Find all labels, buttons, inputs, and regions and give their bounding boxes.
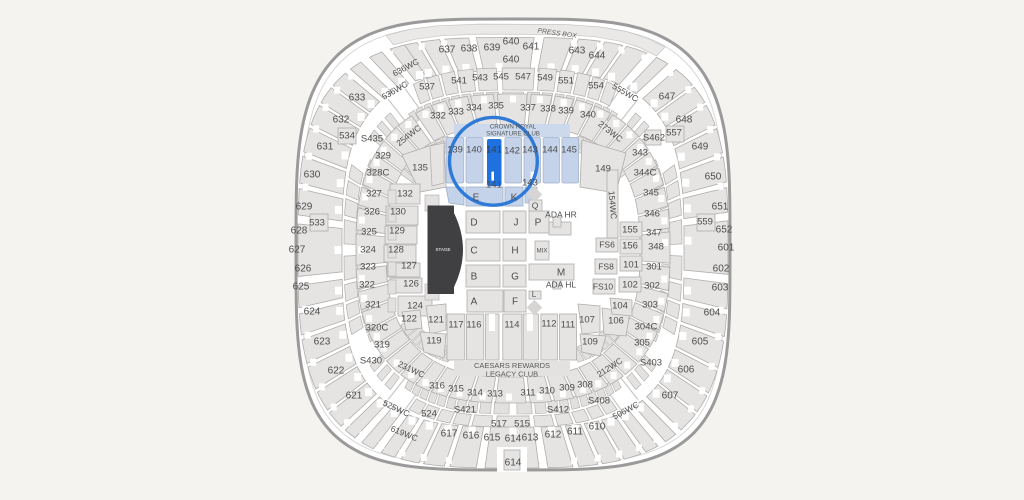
svg-text:143: 143 [522, 145, 538, 156]
svg-text:S462: S462 [643, 133, 665, 144]
svg-text:629: 629 [296, 202, 313, 213]
svg-text:610: 610 [589, 422, 606, 433]
svg-text:623: 623 [314, 337, 331, 348]
svg-text:627: 627 [289, 245, 306, 256]
svg-text:347: 347 [646, 228, 662, 239]
svg-text:S412: S412 [547, 405, 569, 416]
svg-text:S435: S435 [361, 134, 383, 145]
svg-text:327: 327 [366, 189, 382, 200]
svg-text:630: 630 [304, 170, 321, 181]
svg-text:F: F [512, 297, 518, 308]
svg-text:613: 613 [522, 433, 539, 444]
svg-text:615: 615 [484, 433, 501, 444]
svg-text:104: 104 [612, 301, 628, 312]
svg-text:119: 119 [426, 336, 441, 347]
svg-text:612: 612 [545, 430, 562, 441]
svg-text:ADA HL: ADA HL [546, 279, 577, 289]
svg-text:606: 606 [678, 365, 695, 376]
svg-text:FS6: FS6 [599, 239, 615, 249]
svg-text:139: 139 [447, 145, 463, 156]
svg-text:346: 346 [644, 209, 660, 220]
svg-text:310: 310 [539, 386, 555, 397]
svg-text:638: 638 [461, 44, 478, 55]
svg-text:313: 313 [487, 389, 503, 400]
svg-text:D: D [470, 218, 477, 229]
svg-text:149: 149 [595, 164, 611, 175]
svg-text:517: 517 [491, 419, 507, 430]
svg-text:339: 339 [558, 106, 574, 117]
svg-text:128: 128 [388, 245, 404, 256]
svg-text:551: 551 [558, 76, 574, 87]
svg-text:141: 141 [486, 180, 502, 191]
svg-text:117: 117 [448, 320, 463, 331]
svg-text:649: 649 [692, 142, 709, 153]
svg-text:643: 643 [569, 46, 586, 57]
svg-text:316: 316 [429, 381, 445, 392]
svg-text:633: 633 [349, 93, 366, 104]
svg-text:102: 102 [622, 280, 638, 291]
svg-text:651: 651 [712, 202, 729, 213]
svg-text:607: 607 [662, 391, 679, 402]
svg-text:STAGE: STAGE [436, 247, 451, 252]
svg-text:112: 112 [541, 319, 556, 330]
svg-text:604: 604 [704, 308, 721, 319]
svg-text:122: 122 [401, 314, 417, 325]
svg-text:605: 605 [692, 337, 709, 348]
svg-text:111: 111 [561, 320, 575, 331]
svg-text:524: 524 [421, 409, 437, 420]
svg-text:156: 156 [622, 241, 638, 252]
svg-text:H: H [511, 246, 518, 257]
svg-text:515: 515 [514, 419, 530, 430]
svg-text:554: 554 [588, 81, 604, 92]
svg-text:124: 124 [407, 301, 423, 312]
svg-text:121: 121 [428, 315, 444, 326]
svg-text:LEGACY CLUB: LEGACY CLUB [486, 369, 538, 378]
svg-text:543: 543 [472, 73, 488, 84]
svg-text:601: 601 [718, 243, 735, 254]
svg-text:311: 311 [520, 388, 535, 399]
svg-text:641: 641 [523, 42, 540, 53]
svg-text:127: 127 [401, 261, 417, 272]
svg-text:A: A [471, 297, 478, 308]
svg-text:L: L [532, 290, 537, 299]
svg-text:334: 334 [466, 103, 482, 114]
svg-text:340: 340 [580, 110, 596, 121]
svg-text:P: P [535, 218, 542, 229]
svg-text:328C: 328C [367, 168, 390, 179]
svg-text:G: G [511, 272, 519, 283]
svg-text:647: 647 [659, 92, 676, 103]
svg-text:315: 315 [448, 384, 464, 395]
svg-text:628: 628 [291, 226, 308, 237]
svg-text:640: 640 [503, 37, 520, 48]
svg-text:S430: S430 [360, 356, 382, 367]
svg-text:622: 622 [328, 366, 345, 377]
svg-text:144: 144 [542, 145, 558, 156]
svg-text:640: 640 [503, 55, 520, 66]
svg-text:541: 541 [451, 76, 467, 87]
svg-text:114: 114 [504, 320, 519, 331]
svg-text:324: 324 [360, 245, 376, 256]
svg-text:637: 637 [439, 45, 456, 56]
svg-text:614: 614 [505, 458, 522, 469]
svg-text:155: 155 [622, 225, 638, 236]
svg-text:302: 302 [644, 281, 660, 292]
svg-text:FS8: FS8 [598, 261, 614, 271]
svg-text:M: M [557, 268, 565, 279]
svg-text:145: 145 [561, 145, 577, 156]
svg-text:631: 631 [317, 142, 334, 153]
svg-text:337: 337 [520, 103, 536, 114]
svg-text:132: 132 [397, 189, 413, 200]
svg-text:648: 648 [676, 115, 693, 126]
svg-text:140: 140 [466, 145, 482, 156]
svg-text:632: 632 [333, 115, 350, 126]
svg-text:CROWN ROYAL: CROWN ROYAL [490, 124, 537, 131]
svg-text:603: 603 [712, 283, 729, 294]
svg-text:135: 135 [412, 163, 428, 174]
svg-text:142: 142 [504, 146, 520, 157]
svg-text:301: 301 [646, 262, 662, 273]
svg-text:S403: S403 [640, 358, 662, 369]
svg-text:303: 303 [642, 300, 658, 311]
svg-text:345: 345 [643, 188, 659, 199]
svg-text:652: 652 [716, 225, 733, 236]
svg-text:624: 624 [304, 307, 321, 318]
svg-text:625: 625 [293, 282, 310, 293]
svg-text:320C: 320C [366, 323, 389, 334]
svg-text:323: 323 [360, 262, 376, 273]
svg-text:621: 621 [346, 391, 363, 402]
svg-text:109: 109 [582, 337, 598, 348]
svg-text:319: 319 [374, 340, 390, 351]
svg-text:S408: S408 [588, 396, 610, 407]
svg-text:616: 616 [463, 431, 480, 442]
svg-text:314: 314 [467, 388, 483, 399]
svg-text:626: 626 [295, 264, 312, 275]
svg-text:335: 335 [488, 101, 504, 112]
svg-text:639: 639 [484, 43, 501, 54]
svg-text:547: 547 [515, 72, 531, 83]
svg-text:611: 611 [567, 427, 583, 438]
svg-text:B: B [471, 272, 478, 283]
svg-text:305: 305 [634, 338, 650, 349]
svg-text:650: 650 [705, 172, 722, 183]
svg-text:325: 325 [361, 227, 377, 238]
svg-text:129: 129 [389, 226, 405, 237]
svg-text:K: K [511, 193, 518, 204]
svg-text:333: 333 [448, 107, 464, 118]
svg-text:332: 332 [430, 111, 446, 122]
svg-text:322: 322 [359, 280, 375, 291]
svg-text:E: E [473, 193, 480, 204]
svg-text:329: 329 [375, 151, 391, 162]
svg-text:617: 617 [441, 429, 458, 440]
svg-text:308: 308 [577, 380, 593, 391]
svg-text:545: 545 [493, 72, 509, 83]
svg-text:344C: 344C [634, 168, 657, 179]
svg-text:537: 537 [419, 82, 435, 93]
svg-text:S421: S421 [454, 405, 476, 416]
svg-text:130: 130 [390, 207, 406, 218]
svg-text:143: 143 [522, 178, 538, 189]
svg-text:C: C [470, 246, 477, 257]
svg-text:614: 614 [505, 434, 522, 445]
svg-text:326: 326 [364, 207, 380, 218]
svg-text:106: 106 [608, 316, 624, 327]
svg-text:Q: Q [532, 200, 539, 210]
svg-text:644: 644 [589, 51, 606, 62]
svg-text:107: 107 [579, 315, 595, 326]
svg-text:304C: 304C [635, 322, 658, 333]
svg-text:338: 338 [540, 104, 556, 115]
svg-text:141: 141 [486, 145, 502, 156]
svg-text:557: 557 [666, 128, 682, 139]
svg-text:ADA HR: ADA HR [545, 209, 577, 219]
svg-text:602: 602 [713, 264, 730, 275]
svg-text:101: 101 [623, 260, 639, 271]
svg-text:SIGNATURE CLUB: SIGNATURE CLUB [486, 131, 540, 138]
svg-text:126: 126 [403, 279, 419, 290]
svg-text:116: 116 [466, 320, 481, 331]
svg-text:MIX: MIX [537, 249, 548, 255]
svg-text:FS10: FS10 [593, 281, 614, 291]
svg-text:321: 321 [365, 300, 381, 311]
svg-text:533: 533 [309, 218, 325, 229]
svg-text:309: 309 [559, 383, 575, 394]
svg-text:534: 534 [339, 131, 355, 142]
svg-text:549: 549 [537, 73, 553, 84]
svg-text:343: 343 [632, 148, 648, 159]
svg-text:559: 559 [697, 217, 713, 228]
svg-text:348: 348 [648, 242, 664, 253]
svg-text:J: J [514, 218, 519, 229]
